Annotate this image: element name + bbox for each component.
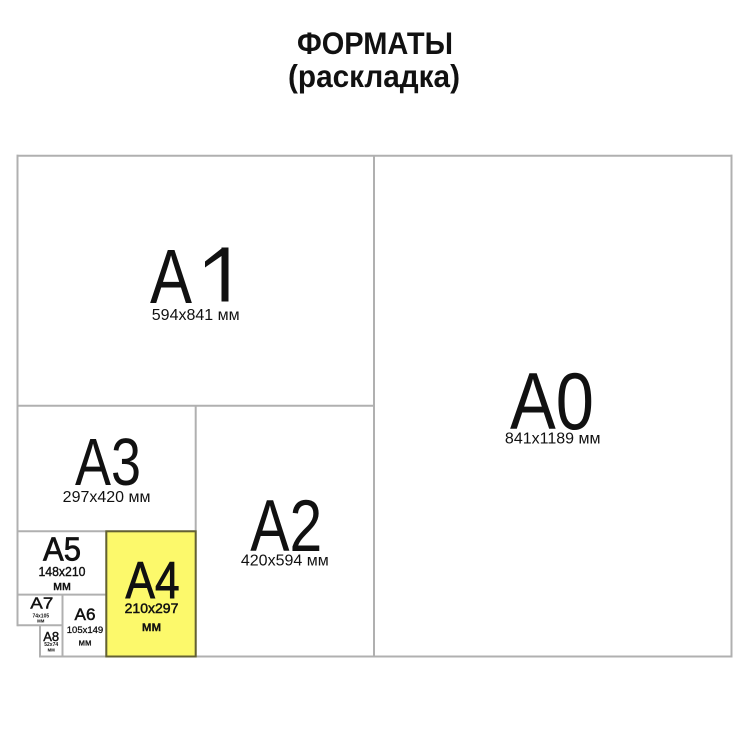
svg-text:420х594 мм: 420х594 мм: [241, 553, 329, 570]
svg-text:мм: мм: [53, 578, 71, 593]
svg-text:105х149: 105х149: [67, 625, 103, 636]
svg-text:мм: мм: [47, 648, 55, 654]
svg-text:мм: мм: [37, 619, 45, 625]
svg-text:297х420 мм: 297х420 мм: [63, 489, 151, 506]
svg-text:мм: мм: [78, 638, 91, 649]
svg-text:210х297: 210х297: [125, 600, 179, 616]
svg-text:(раскладка): (раскладка): [288, 58, 460, 94]
svg-text:ФОРМАТЫ: ФОРМАТЫ: [297, 25, 453, 61]
svg-text:A6: A6: [75, 605, 96, 624]
svg-text:A5: A5: [43, 531, 81, 568]
svg-text:мм: мм: [142, 618, 161, 634]
svg-text:594х841 мм: 594х841 мм: [152, 307, 240, 324]
svg-text:A7: A7: [30, 595, 53, 612]
svg-text:148х210: 148х210: [39, 564, 86, 579]
svg-text:841х1189 мм: 841х1189 мм: [505, 431, 601, 448]
